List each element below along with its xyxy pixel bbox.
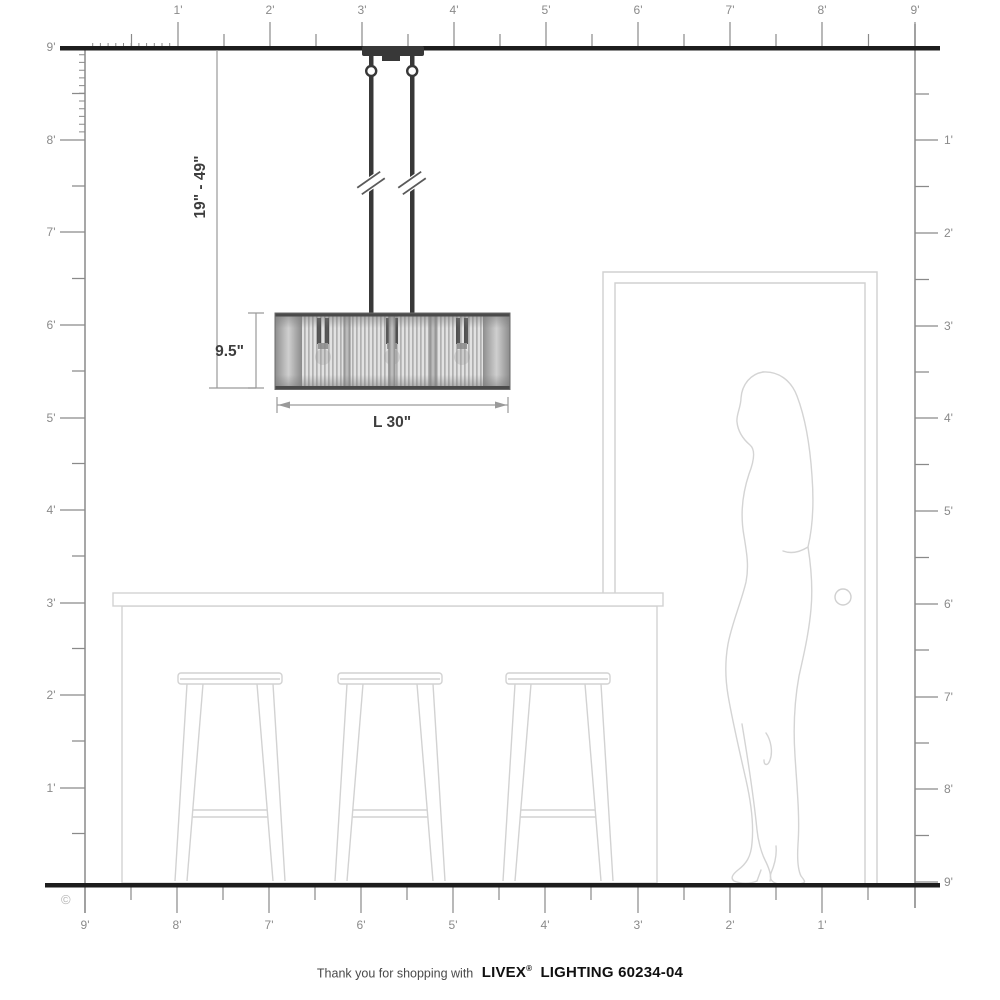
top-ruler-half-ticks <box>132 34 869 48</box>
person-inner-leg-line <box>742 724 771 881</box>
left-ruler-inch-ticks <box>79 55 85 132</box>
shade-bottom-band <box>275 386 510 390</box>
right-ruler-label: 3' <box>944 319 953 333</box>
bottom-ruler-label: 3' <box>634 918 643 932</box>
length-arrowhead-left <box>278 402 290 409</box>
top-ruler-label: 9' <box>911 3 920 17</box>
hang-range-label: 19" - 49" <box>192 156 209 219</box>
island-countertop <box>113 593 663 606</box>
rod-loop <box>366 66 376 76</box>
bottom-ruler-label: 1' <box>818 918 827 932</box>
door-knob <box>835 589 851 605</box>
shade-shading-overlay <box>275 315 510 388</box>
top-ruler-label: 6' <box>634 3 643 17</box>
fixture-shade <box>275 313 510 390</box>
hang-range-dimension-line <box>209 50 256 388</box>
right-ruler-label: 8' <box>944 782 953 796</box>
floor-line <box>45 883 940 888</box>
right-ruler-label: 5' <box>944 504 953 518</box>
top-ruler-label: 8' <box>818 3 827 17</box>
left-ruler-label: 3' <box>47 596 56 610</box>
diagram-canvas: 1' 2' 3' 4' 5' 6' 7' 8' 9' 9' 8' 7' 6' 5… <box>0 0 1000 1000</box>
left-ruler-label: 5' <box>47 411 56 425</box>
footer-thanks-text: Thank you for shopping with <box>317 966 473 980</box>
length-arrowhead-right <box>495 402 507 409</box>
top-ruler-label: 1' <box>174 3 183 17</box>
registered-trademark-symbol: ® <box>526 964 532 973</box>
scale-diagram: 1' 2' 3' 4' 5' 6' 7' 8' 9' 9' 8' 7' 6' 5… <box>0 0 1000 1000</box>
top-ruler-label: 7' <box>726 3 735 17</box>
fixture-length-label: L 30" <box>373 414 411 431</box>
canopy-center-tab <box>382 56 400 61</box>
bottom-ruler-label: 5' <box>449 918 458 932</box>
left-ruler-label: 2' <box>47 688 56 702</box>
brand-name: LIVEX <box>482 964 526 981</box>
top-ruler-label: 5' <box>542 3 551 17</box>
person-hair-line <box>783 547 808 552</box>
person-hand-line <box>764 733 771 765</box>
bottom-ruler-label: 8' <box>173 918 182 932</box>
left-ruler-label: 6' <box>47 318 56 332</box>
rod-loop <box>407 66 417 76</box>
right-ruler-label: 1' <box>944 133 953 147</box>
kitchen-island <box>113 593 663 883</box>
top-ruler-label: 4' <box>450 3 459 17</box>
person-silhouette <box>726 372 813 885</box>
left-ruler-label: 1' <box>47 781 56 795</box>
right-ruler-label: 9' <box>944 875 953 889</box>
right-ruler-label: 6' <box>944 597 953 611</box>
top-ruler-label: 3' <box>358 3 367 17</box>
island-base <box>122 606 657 883</box>
copyright-symbol: © <box>61 892 71 907</box>
bottom-ruler-label: 4' <box>541 918 550 932</box>
person-back-outline <box>763 372 813 885</box>
right-ruler-label: 2' <box>944 226 953 240</box>
left-ruler-label: 4' <box>47 503 56 517</box>
right-ruler-label: 4' <box>944 411 953 425</box>
ceiling-line <box>60 46 940 51</box>
bottom-ruler-label: 9' <box>81 918 90 932</box>
shade-top-band <box>275 313 510 317</box>
bottom-ruler-label: 7' <box>265 918 274 932</box>
pendant-fixture <box>275 46 510 390</box>
right-ruler-major-ticks <box>915 140 938 882</box>
bottom-ruler-label: 6' <box>357 918 366 932</box>
right-ruler-half-ticks <box>915 94 929 836</box>
left-ruler-half-ticks <box>72 94 85 834</box>
bottom-ruler-label: 2' <box>726 918 735 932</box>
person-front-outline <box>726 372 763 883</box>
ceiling-canopy <box>362 46 424 56</box>
bottom-ruler-major-ticks <box>85 885 915 913</box>
left-ruler-label: 7' <box>47 225 56 239</box>
length-dimension-line <box>277 397 508 413</box>
height-dimension-line <box>248 313 264 388</box>
left-ruler-label: 9' <box>47 40 56 54</box>
top-ruler-label: 2' <box>266 3 275 17</box>
fixture-height-label: 9.5" <box>215 343 244 360</box>
product-model-text: LIGHTING 60234-04 <box>540 964 683 981</box>
right-ruler-label: 7' <box>944 690 953 704</box>
footer-text: Thank you for shopping with LIVEX® LIGHT… <box>0 964 1000 982</box>
top-ruler-major-ticks <box>178 22 915 48</box>
left-ruler-label: 8' <box>47 133 56 147</box>
